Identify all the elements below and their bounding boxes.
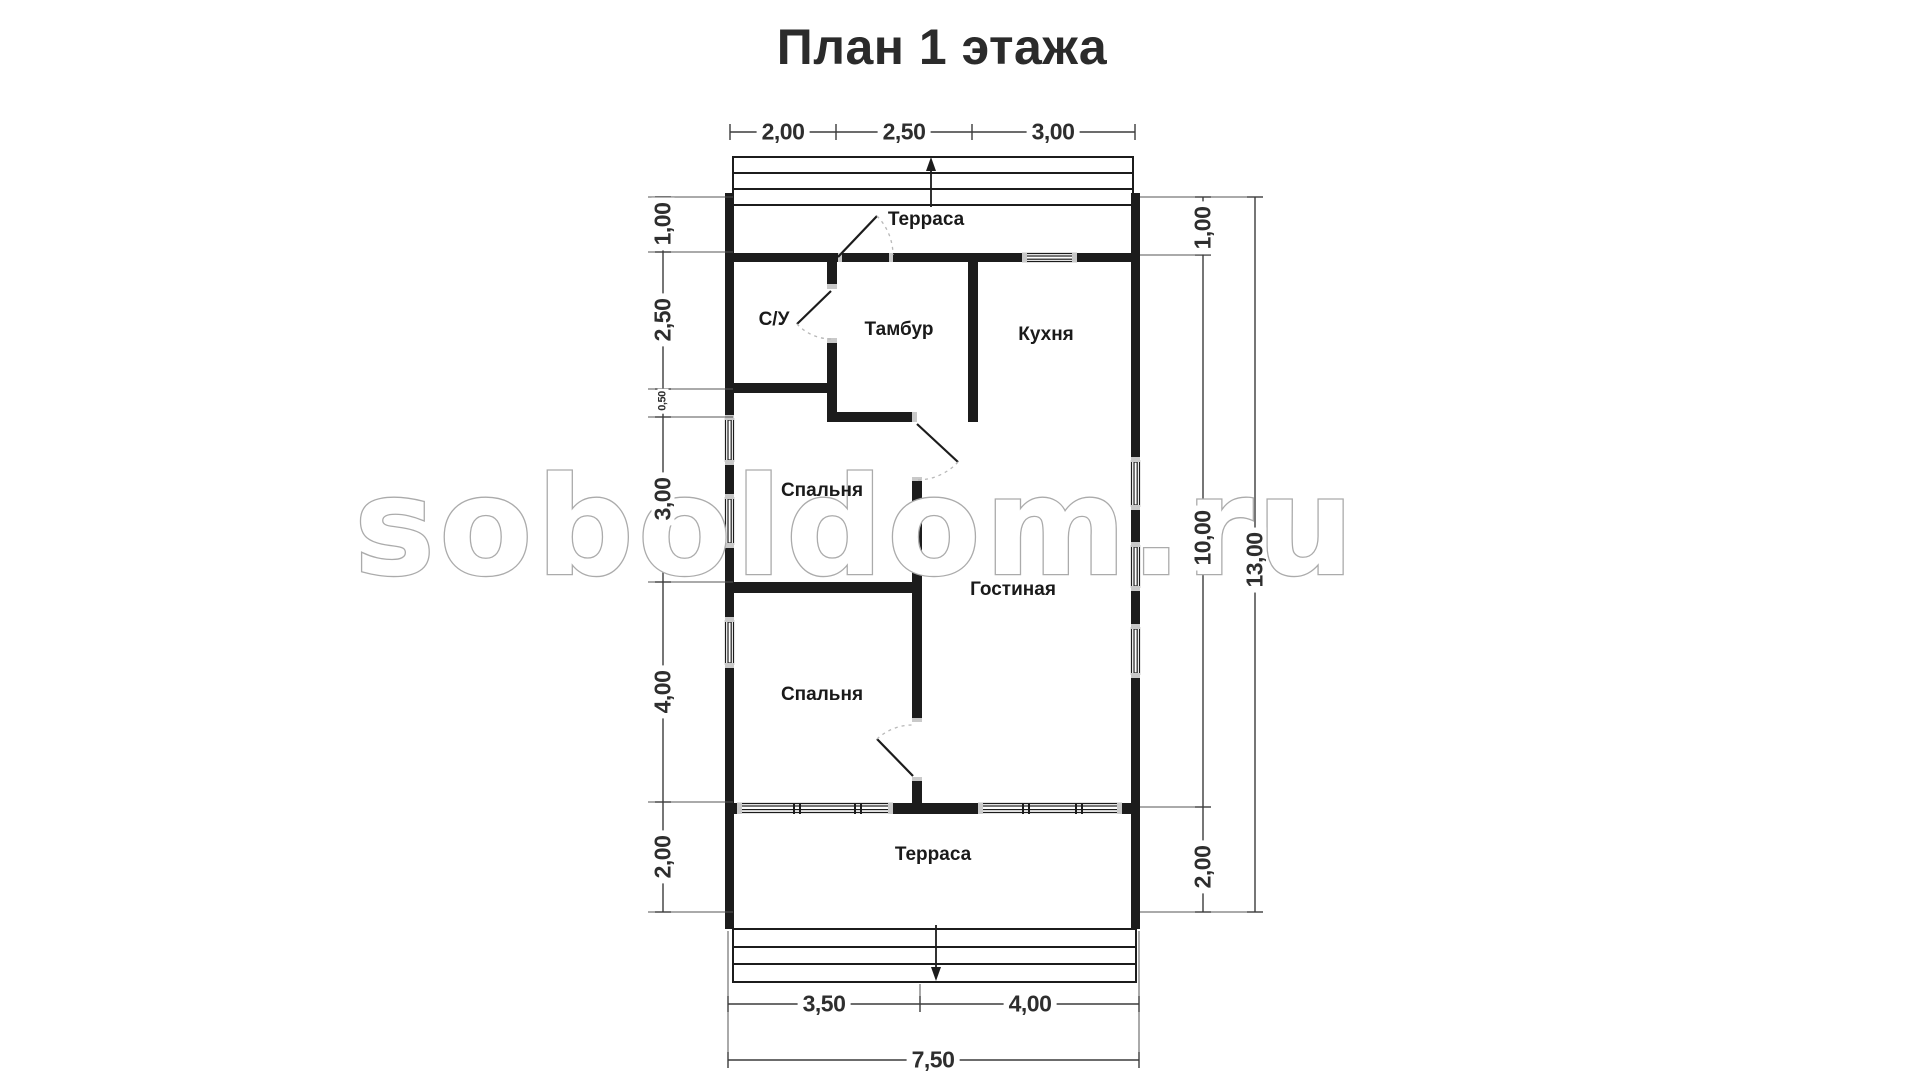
dim-top-3: 3,00 [1027,121,1080,144]
window [1022,252,1077,263]
dim-left-5: 4,00 [652,666,675,719]
entry-arrow-up [926,157,936,207]
exit-arrow-down [931,925,941,981]
dim-left-1: 1,00 [652,198,675,251]
dim-right-total: 13,00 [1244,527,1267,592]
window [1130,624,1141,678]
window [978,802,1122,815]
bedroom-door [877,725,913,776]
extension-lines [648,197,1262,1068]
bathroom-door [797,291,831,339]
window [737,802,893,815]
entrance-door [838,216,893,257]
dim-right-3: 2,00 [1192,841,1215,894]
room-label-living-room: Гостиная [970,579,1056,601]
dim-left-6: 2,00 [652,831,675,884]
dim-right-1: 1,00 [1192,202,1215,255]
dim-left-3: 0,50 [658,388,669,413]
room-label-bedroom-1: Спальня [781,480,863,502]
dim-left-2: 2,50 [652,294,675,347]
dim-left-4: 3,00 [652,473,675,526]
dim-right-2: 10,00 [1192,505,1215,570]
room-label-terrace-top: Терраса [888,209,964,231]
room-label-bedroom-2: Спальня [781,684,863,706]
room-label-vestibule: Тамбур [865,319,934,341]
dim-bottom-total: 7,50 [907,1049,960,1072]
dim-top-1: 2,00 [757,121,810,144]
dim-bottom-1: 3,50 [798,993,851,1016]
dim-top-2: 2,50 [878,121,931,144]
window [724,617,735,668]
floor-plan-page: soboldom.ru План 1 этажа Терраса С/У Там… [0,0,1920,1080]
room-label-kitchen: Кухня [1018,324,1074,346]
floor-plan-drawing: soboldom.ru [0,0,1920,1080]
room-label-terrace-bottom: Терраса [895,844,971,866]
room-label-bathroom: С/У [759,309,790,331]
page-title: План 1 этажа [777,18,1107,76]
dim-bottom-2: 4,00 [1004,993,1057,1016]
